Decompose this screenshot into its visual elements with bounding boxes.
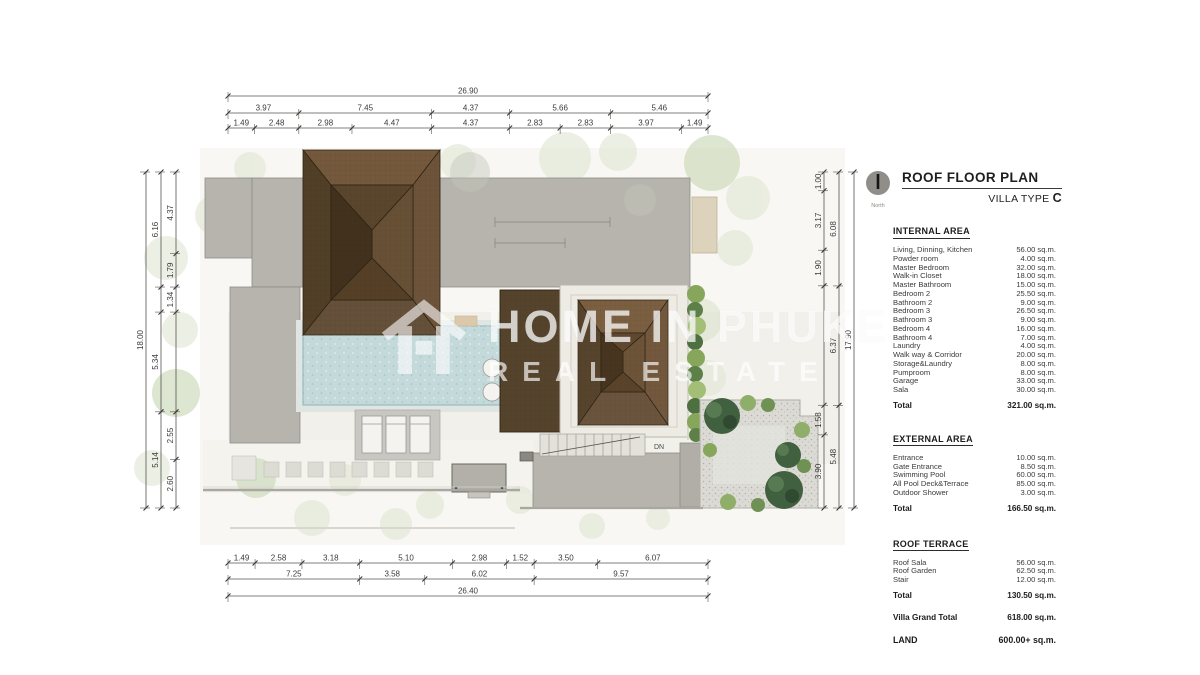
dim-label: 1.49 (687, 119, 703, 128)
area-row-value: 30.00 sq.m. (1016, 386, 1056, 395)
area-row: Sala30.00 sq.m. (893, 386, 1056, 395)
dim-label: 2.98 (472, 554, 488, 563)
hip-roof-main (303, 150, 440, 335)
dim-label: 4.37 (463, 119, 479, 128)
external-total-label: Total (893, 504, 912, 513)
internal-total-row: Total 321.00 sq.m. (893, 401, 1056, 410)
dim-label: 6.37 (829, 337, 838, 353)
area-row-label: Sala (893, 386, 908, 395)
dim-label: 3.97 (256, 104, 272, 113)
equipment-box (520, 452, 533, 461)
north-compass: North (862, 170, 894, 209)
dim-label: 4.47 (384, 119, 400, 128)
land-value: 600.00+ sq.m. (999, 635, 1056, 645)
terrace-total-label: Total (893, 591, 912, 600)
dim-label: 1.90 (814, 260, 823, 276)
area-row-label: Outdoor Shower (893, 489, 948, 498)
dim-label: 2.55 (166, 427, 175, 443)
dim-label: 26.40 (458, 587, 479, 596)
page: { "header": { "title": "ROOF FLOOR PLAN"… (0, 0, 1200, 675)
dim-label: 1.49 (234, 554, 250, 563)
sun-loungers (362, 416, 430, 453)
dim-label: 26.90 (458, 87, 479, 96)
walkway-roof (500, 290, 560, 432)
dim-label: 1.52 (513, 554, 529, 563)
dim-label: 2.83 (578, 119, 594, 128)
dim-label: 1.00 (814, 173, 823, 189)
roof-terrace-heading: ROOF TERRACE (893, 539, 969, 552)
grand-total-value: 618.00 sq.m. (1007, 613, 1056, 622)
dim-label: 18.00 (136, 329, 145, 350)
dim-label: 2.98 (318, 119, 334, 128)
info-panel: North ROOF FLOOR PLAN VILLA TYPE C INTER… (862, 170, 1067, 645)
villa-type-label: VILLA TYPE (988, 193, 1049, 205)
external-total-row: Total 166.50 sq.m. (893, 504, 1056, 513)
dim-label: 7.25 (286, 570, 302, 579)
dim-label: 5.10 (398, 554, 414, 563)
dim-label: 1.34 (166, 291, 175, 307)
dim-label: 3.18 (323, 554, 339, 563)
dim-label: 5.14 (151, 452, 160, 468)
dim-label: 1.49 (233, 119, 249, 128)
dim-label: 3.17 (814, 212, 823, 228)
villa-type-letter: C (1053, 191, 1062, 205)
dim-label: 17.90 (844, 329, 853, 350)
north-label: North (862, 203, 894, 209)
internal-area-heading: INTERNAL AREA (893, 226, 970, 239)
dim-label: 3.58 (384, 570, 400, 579)
dim-label: 3.90 (814, 463, 823, 479)
dim-label: 6.07 (645, 554, 661, 563)
dim-label: 2.60 (166, 475, 175, 491)
internal-area-section: INTERNAL AREA Living, Dinning, Kitchen56… (893, 221, 1056, 410)
land-label: LAND (893, 635, 917, 645)
dim-label: 3.97 (638, 119, 654, 128)
external-area-heading: EXTERNAL AREA (893, 434, 973, 447)
dim-label: 4.37 (166, 204, 175, 220)
hip-roof-sala (578, 300, 668, 425)
drawing-subtitle: VILLA TYPE C (902, 191, 1062, 205)
drawing-titles: ROOF FLOOR PLAN VILLA TYPE C (902, 170, 1062, 205)
dim-label: 6.02 (472, 570, 488, 579)
dim-label: 3.50 (558, 554, 574, 563)
external-area-section: EXTERNAL AREA Entrance10.00 sq.m.Gate En… (893, 429, 1056, 513)
roof-terrace-section: ROOF TERRACE Roof Sala56.00 sq.m.Roof Ga… (893, 534, 1056, 645)
stair-dn-label: DN (654, 444, 664, 451)
area-row-value: 3.00 sq.m. (1021, 489, 1056, 498)
dim-label: 5.66 (552, 104, 568, 113)
internal-area-rows: Living, Dinning, Kitchen56.00 sq.m.Powde… (893, 246, 1056, 395)
land-row: LAND 600.00+ sq.m. (893, 635, 1056, 645)
roof-terrace-rows: Roof Sala56.00 sq.m.Roof Garden62.50 sq.… (893, 559, 1056, 585)
dim-label: 6.08 (829, 221, 838, 237)
north-compass-icon (863, 170, 893, 198)
gravel-courtyard (700, 395, 818, 512)
dim-label: 2.58 (271, 554, 287, 563)
dim-label: 6.16 (151, 221, 160, 237)
dim-label: 9.57 (613, 570, 629, 579)
external-area-rows: Entrance10.00 sq.m.Gate Entrance8.50 sq.… (893, 454, 1056, 498)
dim-label: 7.45 (357, 104, 373, 113)
area-row-label: Stair (893, 576, 909, 585)
external-total-value: 166.50 sq.m. (1007, 504, 1056, 513)
dim-label: 5.46 (652, 104, 668, 113)
dim-label: 1.58 (814, 412, 823, 428)
area-row-value: 12.00 sq.m. (1016, 576, 1056, 585)
dim-label: 2.48 (269, 119, 285, 128)
terrace-total-row: Total 130.50 sq.m. (893, 591, 1056, 600)
grand-total-row: Villa Grand Total 618.00 sq.m. (893, 613, 1056, 622)
internal-total-label: Total (893, 401, 912, 410)
dim-label: 2.83 (527, 119, 543, 128)
internal-total-value: 321.00 sq.m. (1007, 401, 1056, 410)
dim-label: 1.79 (166, 262, 175, 278)
area-row: Stair12.00 sq.m. (893, 576, 1056, 585)
drawing-title: ROOF FLOOR PLAN (902, 170, 1062, 189)
dim-label: 5.34 (151, 354, 160, 370)
area-row: Outdoor Shower3.00 sq.m. (893, 489, 1056, 498)
terrace-total-value: 130.50 sq.m. (1007, 591, 1056, 600)
grand-total-label: Villa Grand Total (893, 613, 957, 622)
dim-label: 4.37 (463, 104, 479, 113)
dim-label: 5.48 (829, 448, 838, 464)
title-block: North ROOF FLOOR PLAN VILLA TYPE C (862, 170, 1067, 209)
